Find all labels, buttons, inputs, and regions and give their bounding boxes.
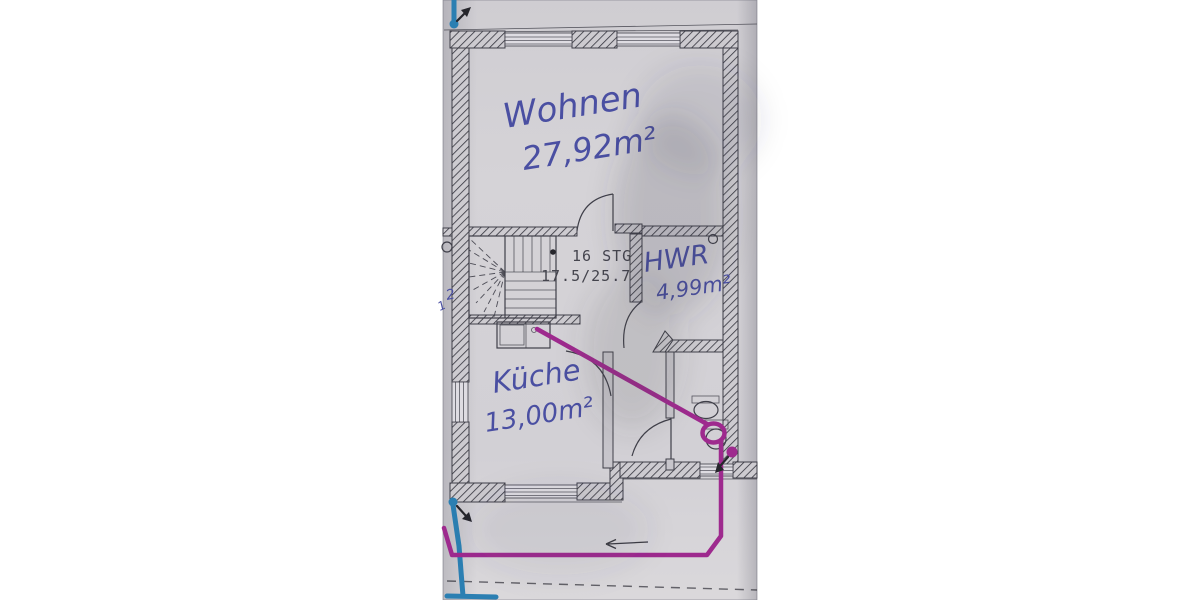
window-left [452,382,468,422]
hand-shadow-top [638,65,762,175]
hand-shadow-lower [584,274,680,430]
wall-wc-left-stub [666,459,674,470]
window-top-right [617,33,680,46]
teal-elbow-bottom [447,596,496,597]
wall-top-mid [572,31,617,48]
window-top-left [505,33,572,46]
wall-top-right [680,31,738,48]
wall-wohnen-separation [469,227,577,236]
stair-newel-dot [550,249,556,255]
paper-shade-bottom [470,485,650,575]
wall-left-lower [452,422,469,488]
wall-stair-bottom [469,315,580,324]
wall-top-left [450,31,505,48]
wall-left-upper [452,48,469,382]
wall-bottom-right-b [733,462,757,478]
magenta-endpoint-dot [727,447,738,458]
wall-bottom-right-a [620,462,700,478]
screenshot-root: 16 STG 17.5/25.7 Wohne [0,0,1200,600]
wall-stub-left-edge [443,228,452,236]
floorplan-photo: 16 STG 17.5/25.7 Wohne [0,0,1200,600]
